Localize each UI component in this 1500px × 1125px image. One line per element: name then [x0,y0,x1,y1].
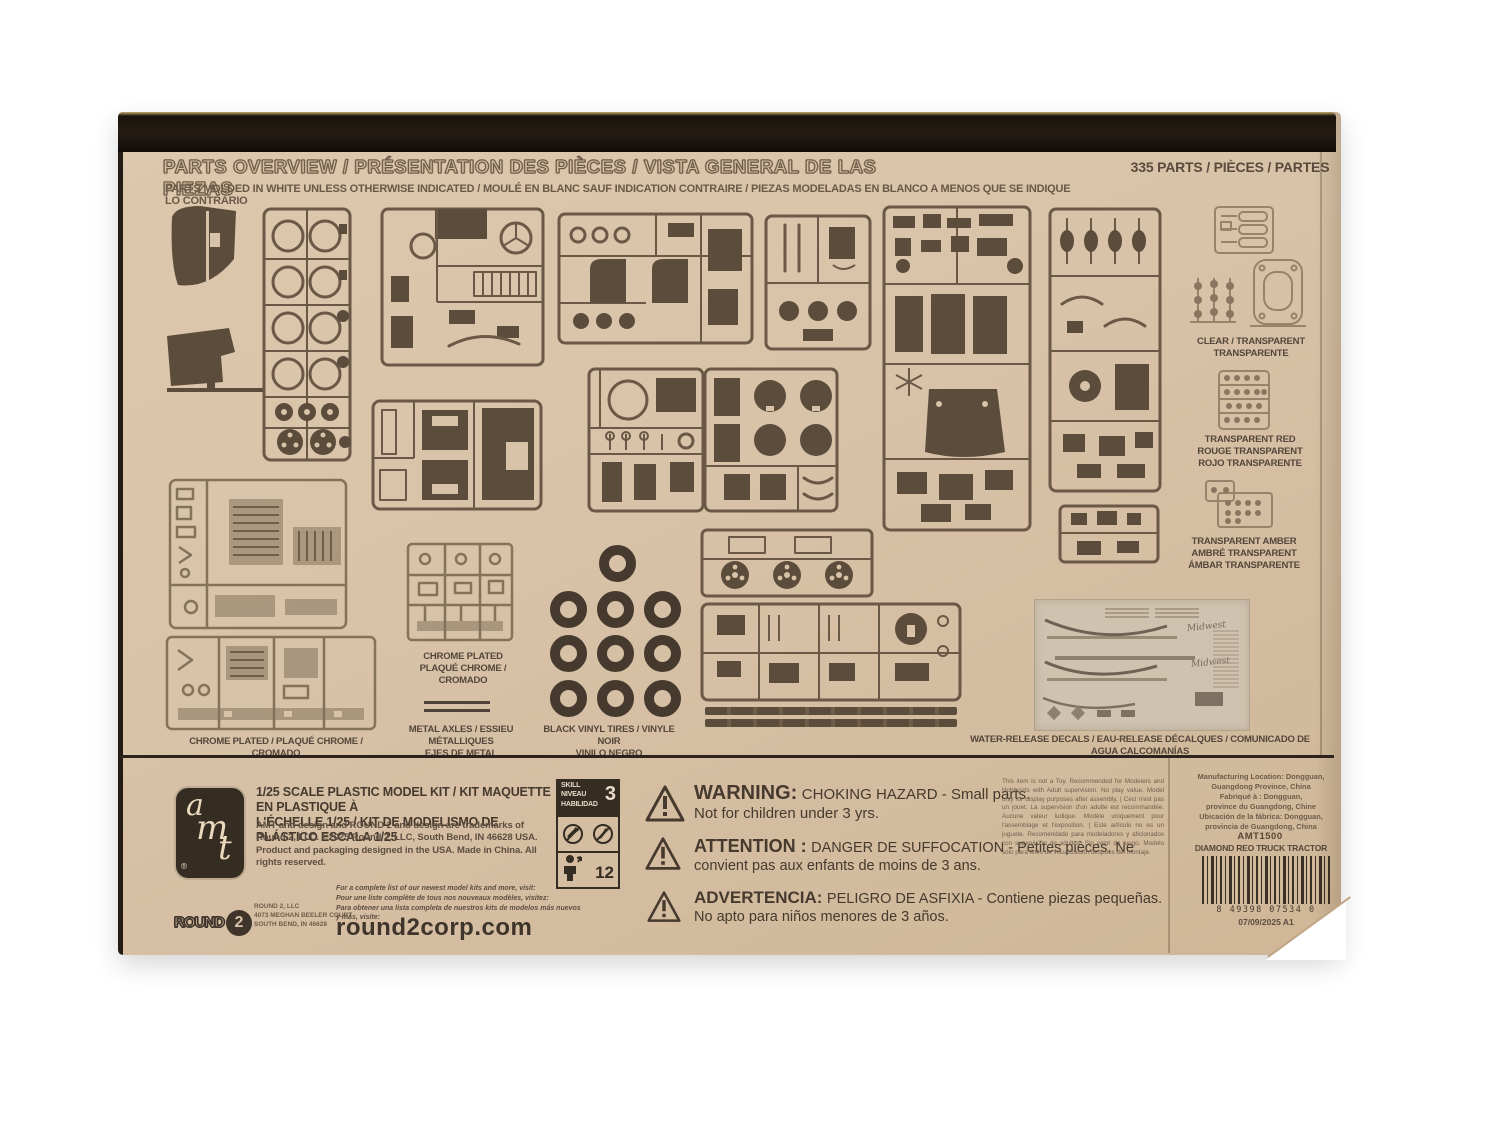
paint-icon [562,823,584,845]
cab-roof-silhouette [166,203,242,295]
tire-illustration [599,545,636,582]
label-transparent-red: TRANSPARENT RED ROUGE TRANSPARENT ROJO T… [1185,434,1315,470]
sprue-engine-hood-dense [881,204,1033,533]
tire-illustration [597,635,634,672]
warning-triangle-icon [646,890,682,924]
sprue-suspension-small [1057,503,1161,565]
box-top-edge [118,112,1336,152]
sprue-wheel-rims [261,206,353,463]
skill-level-header: SKILL NIVEAU HABILIDAD 3 [558,781,618,815]
tire-illustration [550,680,587,717]
frame-rail-1 [705,707,957,715]
website-url: round2corp.com [336,914,596,942]
sprue-cab-fenders [556,211,755,346]
person-icon [562,854,582,882]
glue-icon [592,823,614,845]
tire-illustration [597,591,634,628]
footer-divider-rule [120,755,1334,758]
sprue-fuel-tanks [702,366,840,514]
sprue-pipes-small-parts [763,213,873,352]
upc-barcode [1202,856,1330,904]
warning-es-line2: No apto para niños menores de 3 años. [694,909,949,925]
tire-illustration [597,680,634,717]
frame-rail-2 [705,719,957,727]
sprue-front-wheels [699,527,875,599]
product-name: DIAMOND REO TRUCK TRACTOR [1183,843,1339,853]
label-clear: CLEAR / TRANSPARENT TRANSPARENTE [1190,336,1312,360]
warning-en-heading: WARNING: [694,782,797,804]
decal-dark-block [1195,692,1223,706]
skill-level-badge: SKILL NIVEAU HABILIDAD 3 12 [556,779,620,889]
metal-axle-2 [424,709,490,712]
tools-icons-row [558,815,618,853]
box-right-crease [1320,152,1322,755]
amt-logo: a m t ® [176,788,244,878]
cab-panel-silhouette [163,326,268,396]
decal-text-block [1213,630,1239,690]
tire-illustration [644,591,681,628]
trademark-text: AMT and design and ROUND 2 and design ar… [256,820,554,869]
sprue-clear-lights [1186,274,1240,330]
metal-axle-1 [424,701,490,704]
warning-fr-heading: ATTENTION : [694,836,807,856]
skill-level-number: 3 [605,783,616,806]
sprue-chrome-small [405,541,515,643]
age-recommendation: 12 [558,853,618,883]
sprue-chassis-parts [699,601,963,703]
sprue-suspension-tall [1047,206,1163,494]
sprue-seats-radiator [370,398,544,512]
warning-es-line1: PELIGRO DE ASFIXIA - Contiene piezas peq… [827,891,1162,907]
decal-sheet: Midwest Midwest [1034,599,1250,731]
warning-es: ADVERTENCIA: PELIGRO DE ASFIXIA - Contie… [694,888,1174,926]
tire-illustration [644,680,681,717]
barcode-digits: 8 49398 07534 0 [1192,905,1340,915]
parts-count: 335 PARTS / PIÈCES / PARTES [1120,159,1340,175]
warning-fr-line2: convient pas aux enfants de moins de 3 a… [694,858,981,874]
round2-logo-number: 2 [226,910,252,936]
warning-en-line2: Not for children under 3 yrs. [694,805,879,822]
sprue-clear-lenses [1213,205,1275,255]
manufacturing-info: Manufacturing Location: Dongguan, Guangd… [1183,772,1339,832]
sprue-transparent-amber [1204,479,1274,529]
round2-logo-word: ROUND [174,914,224,931]
warning-en-line1: CHOKING HAZARD - Small parts. [802,786,1030,803]
warning-triangle-icon [644,784,686,824]
age-number: 12 [595,863,614,883]
warning-en: WARNING: CHOKING HAZARD - Small parts. N… [694,782,1054,823]
amt-logo-letter: t [218,828,232,868]
label-chrome-center: CHROME PLATED PLAQUÉ CHROME / CROMADO [398,651,528,687]
tire-illustration [550,591,587,628]
sprue-interior-steering [379,206,546,368]
tire-illustration [644,635,681,672]
sprue-engine-block [586,366,706,514]
warning-es-heading: ADVERTENCIA: [694,888,822,907]
clear-window-part [1248,256,1308,330]
round2-logo: ROUND 2 [174,906,258,946]
sprue-chrome-grille [167,477,349,631]
legal-notice-text: This item is not a Toy. Recommended for … [1002,778,1164,857]
warning-triangle-icon [644,836,682,872]
product-sku: AMT1500 [1190,831,1330,842]
sprue-chrome-bumper [164,634,378,732]
label-transparent-amber: TRANSPARENT AMBER AMBRÉ TRANSPARENT ÁMBA… [1178,536,1310,572]
tire-illustration [550,635,587,672]
sprue-transparent-red [1217,369,1271,431]
registered-mark: ® [180,862,188,871]
